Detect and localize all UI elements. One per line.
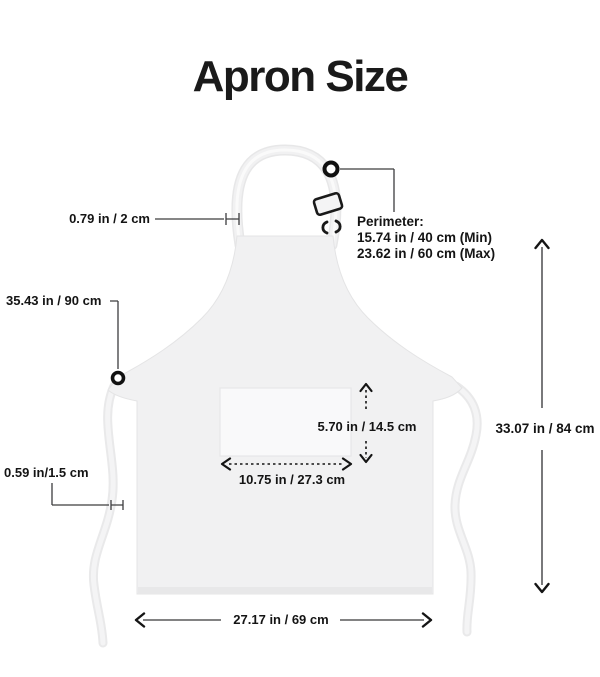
label-pocket-width: 10.75 in / 27.3 cm [230, 472, 354, 488]
label-perimeter: Perimeter: 15.74 in / 40 cm (Min) 23.62 … [357, 214, 495, 262]
label-perimeter-max: 23.62 in / 60 cm (Max) [357, 246, 495, 262]
label-waist-tie-width: 0.59 in/1.5 cm [4, 465, 89, 481]
apron-height-arrow [536, 240, 549, 592]
apron-size-infographic: Apron Size 0.79 in / 2 cm Perimeter: 15.… [0, 0, 600, 677]
label-perimeter-title: Perimeter: [357, 214, 495, 230]
label-neck-strap-width: 0.79 in / 2 cm [40, 211, 150, 227]
apron-hem [138, 587, 432, 594]
label-waist-tie-length: 35.43 in / 90 cm [6, 293, 101, 309]
label-perimeter-min: 15.74 in / 40 cm (Min) [357, 230, 495, 246]
page-title: Apron Size [0, 52, 600, 102]
label-apron-width: 27.17 in / 69 cm [227, 612, 335, 628]
left-waist-tie [93, 386, 114, 643]
right-waist-tie [455, 386, 477, 632]
label-apron-height: 33.07 in / 84 cm [490, 421, 600, 437]
label-pocket-height: 5.70 in / 14.5 cm [307, 419, 427, 435]
ring-marker-neck [325, 163, 338, 176]
ring-marker-waist [113, 373, 124, 384]
